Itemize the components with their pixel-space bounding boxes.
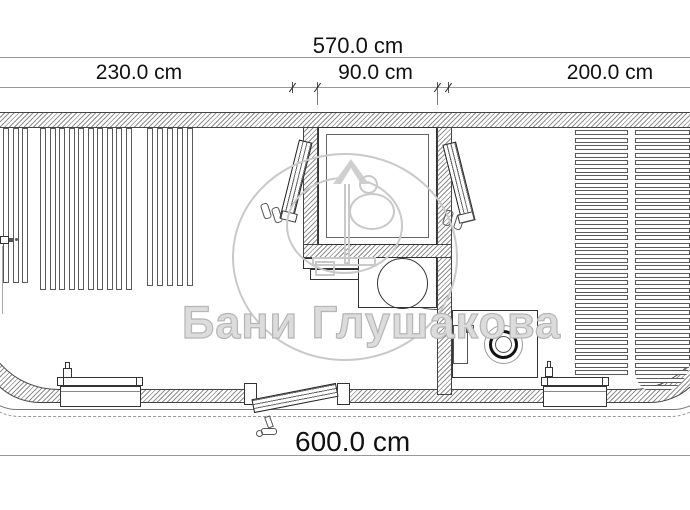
deck-slat bbox=[575, 228, 628, 233]
deck-slat bbox=[635, 145, 690, 150]
door-post-right bbox=[337, 383, 350, 405]
bench-right-cap bbox=[602, 377, 609, 386]
deck-slat bbox=[97, 128, 103, 290]
deck-slat bbox=[575, 280, 628, 285]
deck-slat bbox=[635, 333, 690, 338]
floor-plan-canvas: 570.0 cm 230.0 cm 90.0 cm 200.0 cm bbox=[0, 0, 690, 510]
wall-tap-spout bbox=[9, 238, 14, 242]
deck-slat bbox=[575, 190, 628, 195]
deck-slat bbox=[635, 220, 690, 225]
deck-slat bbox=[635, 205, 690, 210]
bench-right-stem bbox=[547, 361, 551, 368]
deck-slat bbox=[635, 325, 690, 330]
bench-right-rail bbox=[541, 377, 609, 386]
deck-slat bbox=[635, 355, 690, 360]
deck-slat bbox=[635, 250, 690, 255]
entrance-door-handle-bar bbox=[261, 428, 277, 435]
deck-slat bbox=[575, 138, 628, 143]
deck-slat bbox=[177, 128, 183, 286]
deck-slat bbox=[69, 128, 75, 290]
deck-slat bbox=[575, 198, 628, 203]
watermark-logo-base bbox=[315, 261, 335, 276]
deck-slat bbox=[575, 273, 628, 278]
deck-slat bbox=[575, 175, 628, 180]
deck-slat bbox=[635, 273, 690, 278]
deck-slat bbox=[13, 128, 19, 283]
deck-slat bbox=[635, 378, 690, 383]
deck-slat bbox=[575, 355, 628, 360]
deck-slat bbox=[22, 128, 28, 283]
bench-left-cap bbox=[136, 377, 143, 386]
deck-slat bbox=[3, 128, 9, 283]
deck-slat bbox=[50, 128, 56, 290]
bench-right-line bbox=[544, 391, 606, 392]
deck-slat bbox=[575, 370, 628, 375]
deck-slat bbox=[635, 280, 690, 285]
deck-slat bbox=[635, 168, 690, 173]
deck-slat bbox=[575, 348, 628, 353]
watermark-logo-ellipse-small bbox=[349, 193, 395, 230]
bench-right-body bbox=[543, 386, 607, 407]
deck-slat bbox=[635, 160, 690, 165]
deck-slat bbox=[635, 295, 690, 300]
deck-slat bbox=[575, 243, 628, 248]
deck-slat bbox=[575, 325, 628, 330]
deck-slat bbox=[635, 370, 690, 375]
deck-slat bbox=[635, 198, 690, 203]
deck-slat bbox=[635, 235, 690, 240]
deck-slat bbox=[575, 288, 628, 293]
bench-left-stem bbox=[65, 362, 70, 369]
deck-slat bbox=[187, 128, 193, 286]
deck-slat bbox=[575, 168, 628, 173]
watermark-text: Бани Глушакова bbox=[182, 297, 561, 349]
deck-slat bbox=[575, 295, 628, 300]
left-room-wall-slats-1 bbox=[3, 128, 32, 283]
deck-slat bbox=[635, 310, 690, 315]
deck-slat bbox=[88, 128, 94, 290]
deck-slat bbox=[635, 318, 690, 323]
deck-slat bbox=[635, 130, 690, 135]
dimension-line-600 bbox=[0, 455, 690, 456]
deck-slat bbox=[575, 333, 628, 338]
deck-slat bbox=[635, 183, 690, 188]
deck-slat bbox=[635, 363, 690, 368]
deck-slat bbox=[635, 138, 690, 143]
bench-left-line bbox=[61, 391, 140, 392]
deck-slat bbox=[575, 235, 628, 240]
deck-slat bbox=[575, 318, 628, 323]
deck-slat bbox=[126, 128, 132, 290]
deck-slat bbox=[635, 265, 690, 270]
left-room-wall-slats-2 bbox=[40, 128, 135, 290]
deck-slat bbox=[147, 128, 153, 286]
deck-slat bbox=[575, 250, 628, 255]
deck-slat bbox=[575, 363, 628, 368]
bench-left-body bbox=[60, 386, 141, 407]
deck-slat bbox=[635, 153, 690, 158]
deck-slat bbox=[575, 220, 628, 225]
lounger-deck-right bbox=[635, 130, 690, 393]
deck-slat bbox=[116, 128, 122, 290]
deck-slat bbox=[575, 265, 628, 270]
deck-slat bbox=[635, 243, 690, 248]
deck-slat bbox=[575, 205, 628, 210]
deck-slat bbox=[575, 310, 628, 315]
deck-slat bbox=[107, 128, 113, 290]
bench-left-knob bbox=[63, 368, 72, 378]
watermark-logo-mast bbox=[344, 182, 350, 264]
deck-slat bbox=[635, 348, 690, 353]
deck-slat bbox=[635, 385, 690, 390]
bench-right-cap bbox=[541, 377, 548, 386]
deck-slat bbox=[575, 213, 628, 218]
deck-slat bbox=[635, 228, 690, 233]
watermark-logo-dot bbox=[359, 175, 378, 194]
bench-right-knob bbox=[545, 367, 553, 377]
deck-slat bbox=[635, 340, 690, 345]
left-room-wall-slats-3 bbox=[147, 128, 197, 286]
deck-slat bbox=[575, 258, 628, 263]
lounger-deck-left bbox=[575, 130, 628, 378]
deck-slat bbox=[575, 130, 628, 135]
deck-slat bbox=[635, 258, 690, 263]
deck-slat bbox=[575, 183, 628, 188]
deck-slat bbox=[635, 175, 690, 180]
wall-tap-knob bbox=[15, 238, 18, 241]
bench-left-cap bbox=[57, 377, 64, 386]
dimension-bottom-total: 600.0 cm bbox=[295, 426, 405, 458]
wall-tap bbox=[0, 236, 9, 244]
bench-left-rail bbox=[57, 377, 143, 386]
deck-slat bbox=[575, 153, 628, 158]
deck-slat bbox=[635, 303, 690, 308]
deck-slat bbox=[157, 128, 163, 286]
deck-slat bbox=[167, 128, 173, 286]
deck-slat bbox=[575, 160, 628, 165]
wall-pipe bbox=[2, 246, 3, 314]
deck-slat bbox=[59, 128, 65, 290]
deck-slat bbox=[635, 288, 690, 293]
deck-slat bbox=[78, 128, 84, 290]
deck-slat bbox=[635, 190, 690, 195]
deck-slat bbox=[575, 340, 628, 345]
deck-slat bbox=[635, 213, 690, 218]
entrance-door-handle-knob bbox=[256, 430, 263, 437]
deck-slat bbox=[575, 145, 628, 150]
deck-slat bbox=[575, 303, 628, 308]
deck-slat bbox=[40, 128, 46, 290]
